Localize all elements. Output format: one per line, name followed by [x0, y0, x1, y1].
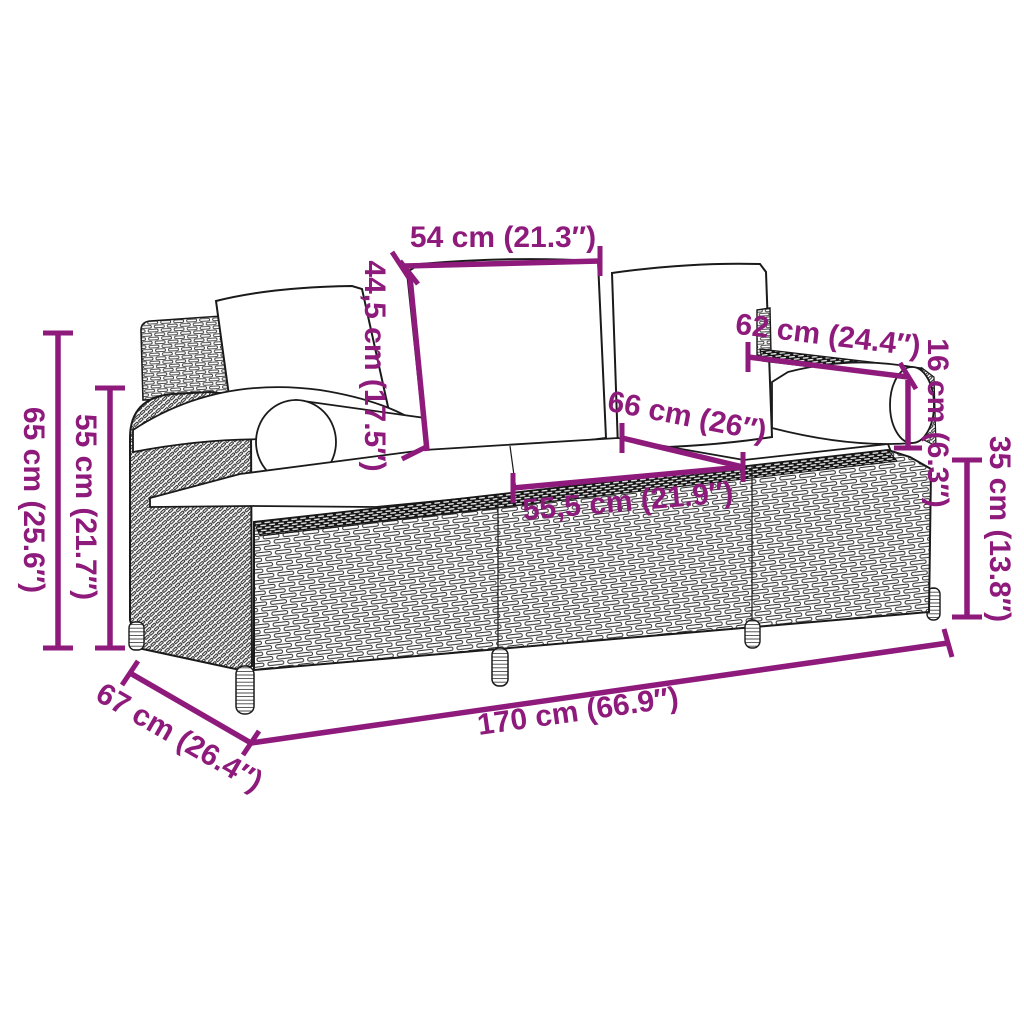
dimension-diagram: 54 cm (21.3″) 44,5 cm (17.5″) 62 cm (24.… [0, 0, 1024, 1024]
dim-label-seat-height: 35 cm (13.8″) [984, 436, 1014, 622]
dim-label-bolster-diameter: 16 cm (6.3″) [922, 338, 952, 507]
sofa-illustration [0, 0, 1024, 1024]
dim-label-back-cushion-height: 44,5 cm (17.5″) [359, 260, 389, 471]
dimension-tick [122, 661, 138, 685]
dim-label-overall-height: 65 cm (25.6″) [18, 407, 48, 593]
dim-label-middle-back-cushion-width: 54 cm (21.3″) [410, 223, 596, 253]
sofa-leg-back-left [129, 622, 144, 650]
back-cushion-middle [407, 259, 606, 452]
sofa-leg-front-middle [492, 648, 508, 686]
sofa-leg-front-left [236, 666, 254, 714]
dim-label-armrest-height: 55 cm (21.7″) [70, 414, 100, 600]
sofa-leg-front-right [745, 620, 760, 648]
left-back-panel [141, 316, 230, 400]
